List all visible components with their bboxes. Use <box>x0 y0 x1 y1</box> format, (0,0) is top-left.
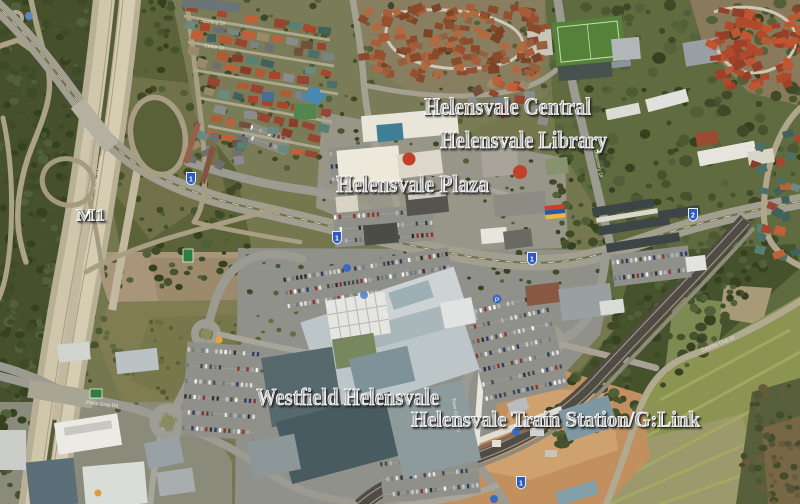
svg-text:M1: M1 <box>76 206 105 225</box>
svg-text:1: 1 <box>519 481 523 488</box>
svg-text:Helensvale Central: Helensvale Central <box>424 95 591 121</box>
svg-text:Helensvale Library: Helensvale Library <box>440 128 607 154</box>
svg-text:1: 1 <box>335 236 339 243</box>
svg-text:Helensvale Plaza: Helensvale Plaza <box>336 172 489 198</box>
svg-text:P: P <box>495 297 499 304</box>
svg-text:Helensvale Train Station/G:Lin: Helensvale Train Station/G:Link <box>411 407 701 432</box>
svg-text:1: 1 <box>189 177 193 184</box>
svg-text:1: 1 <box>530 257 534 264</box>
svg-text:2: 2 <box>691 213 695 220</box>
